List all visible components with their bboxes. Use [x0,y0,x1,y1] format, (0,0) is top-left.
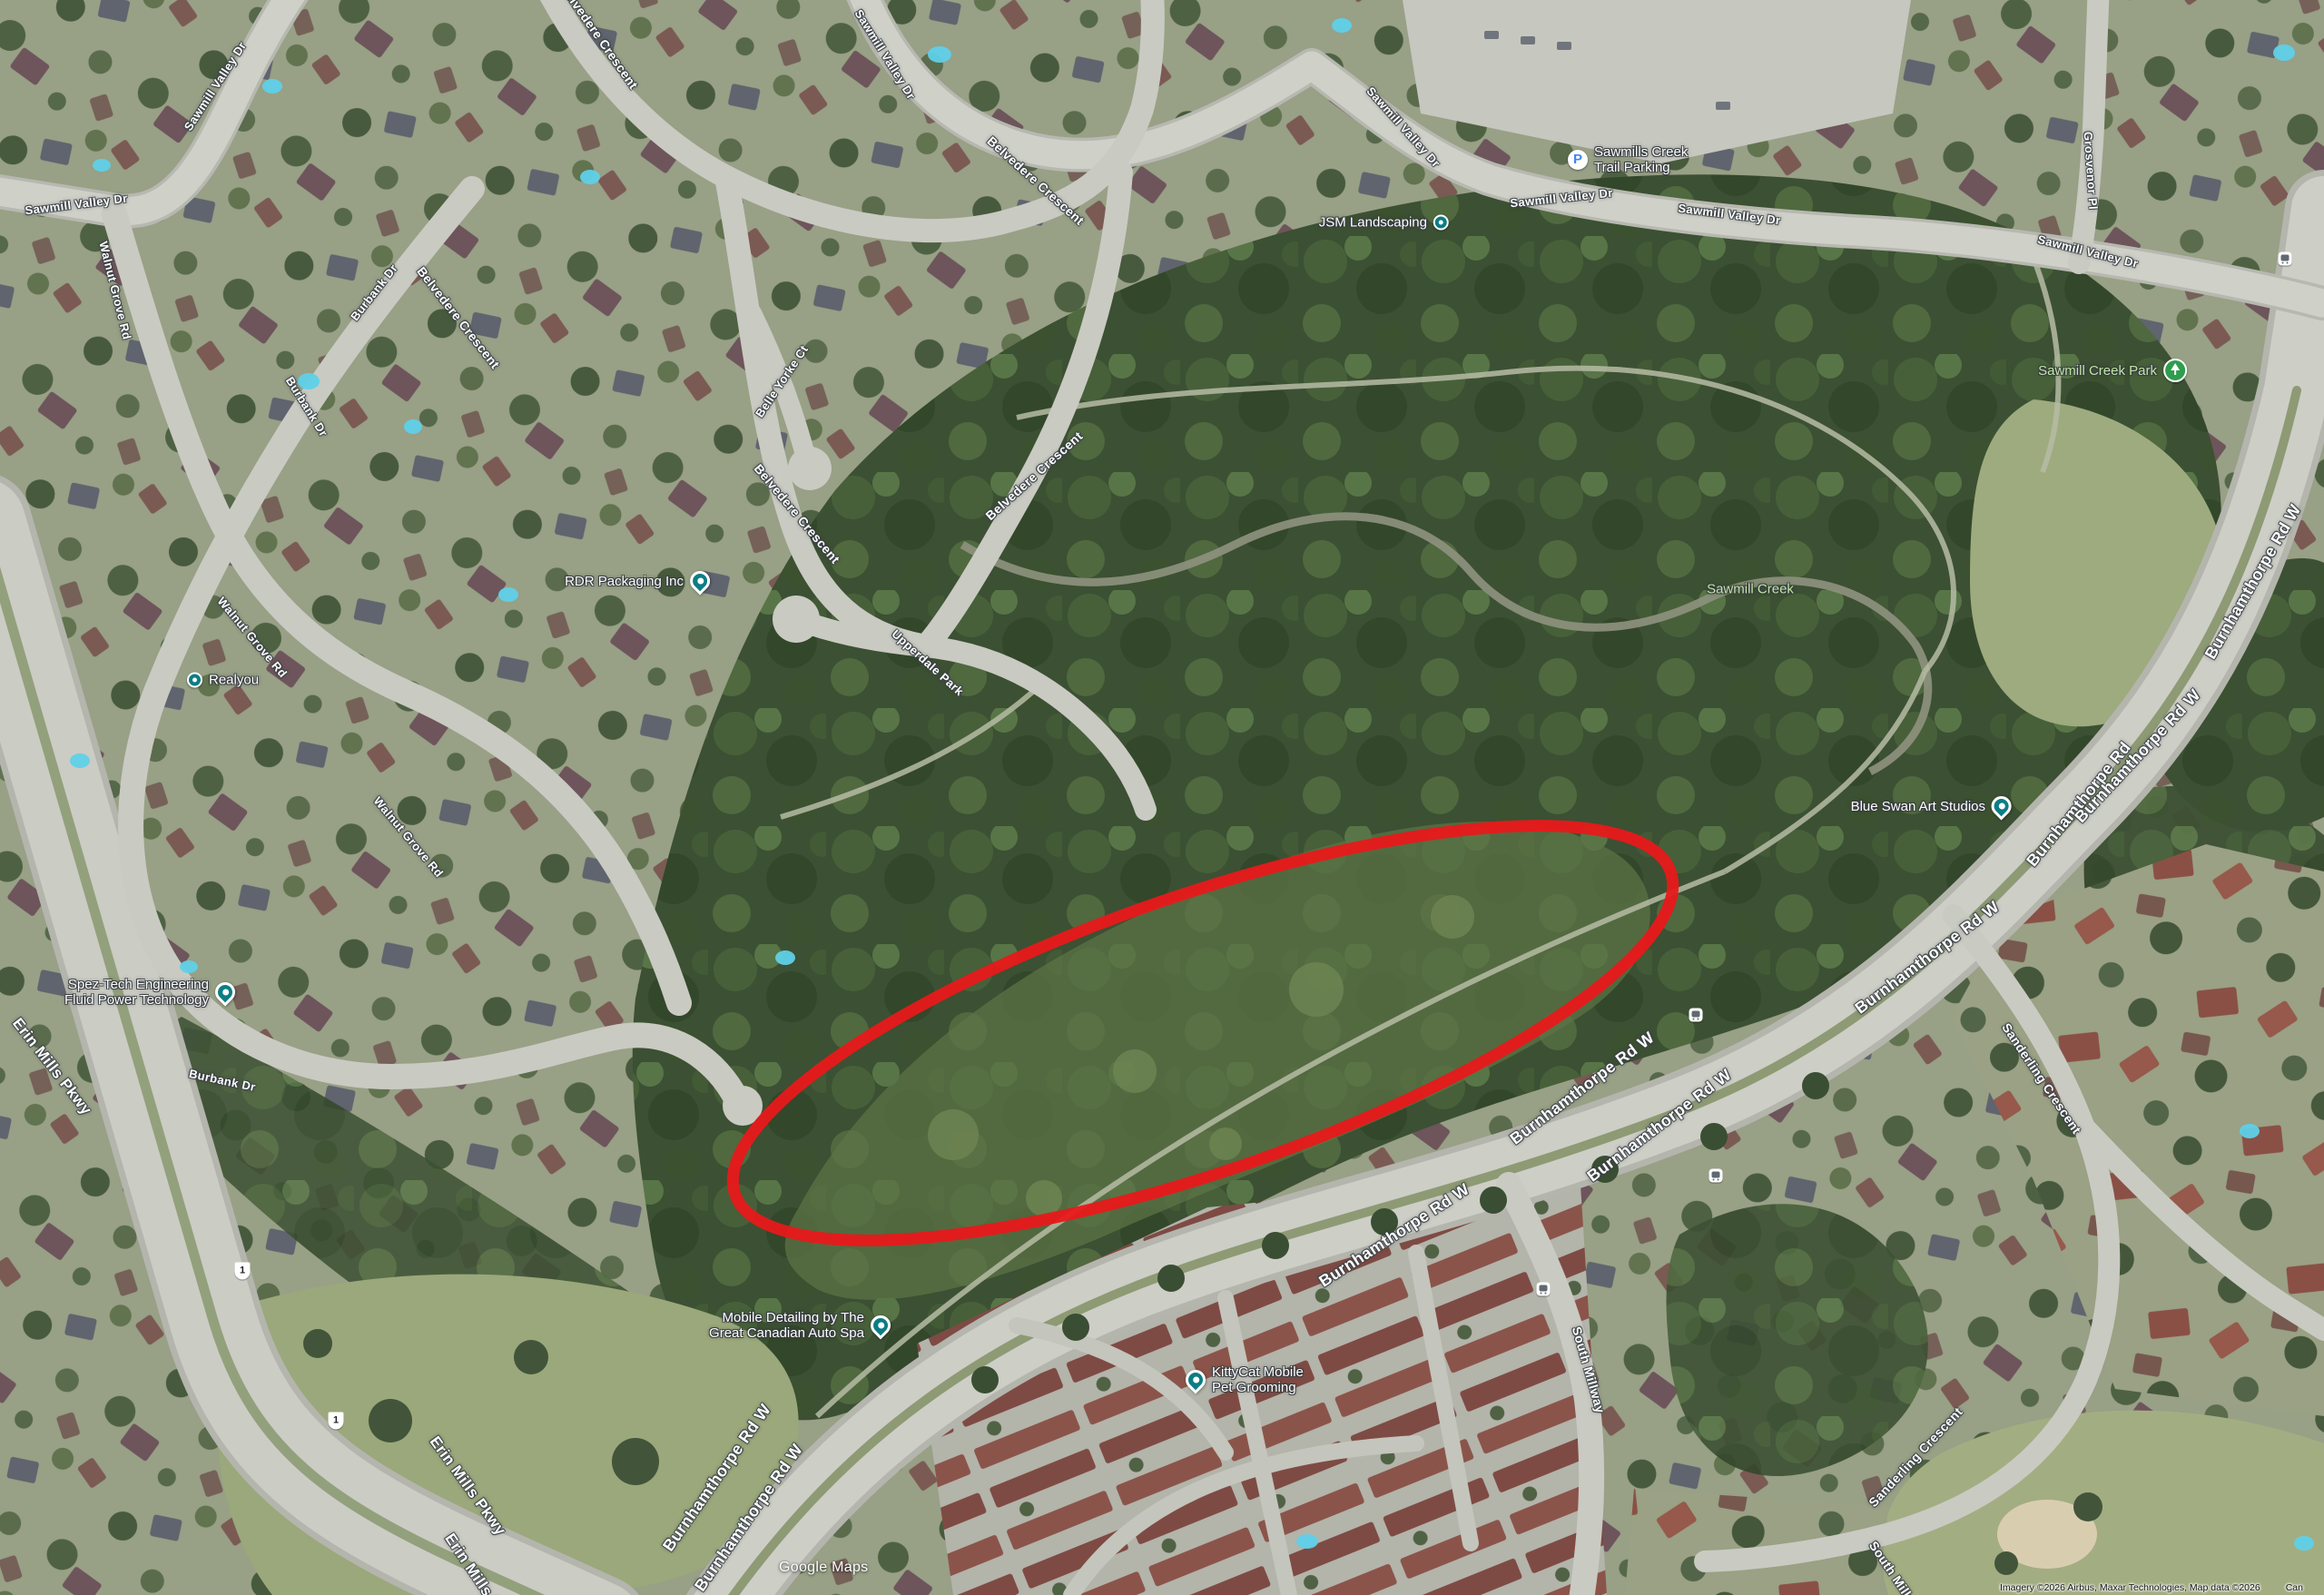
parking-icon[interactable]: P [1568,150,1588,170]
bus-stop-icon[interactable] [1689,1009,1703,1022]
tree-icon[interactable] [2163,359,2187,382]
label-layer: Sawmill Valley DrSawmill Valley DrWalnut… [0,0,2324,1595]
street-label: Upperdale Park [889,627,966,699]
street-label: Belvedere Crescent [414,264,503,372]
street-label: Belvedere Crescent [557,0,641,92]
street-label: Sanderling Crescent [1999,1020,2084,1137]
poi-label-text: JSM Landscaping [1319,215,1427,231]
poi-label-text: Blue Swan Art Studios [1851,799,1985,814]
street-label: Burbank Dr [188,1067,257,1094]
street-label: Erin Mills Pkwy [426,1433,509,1540]
street-label: Burnhamthorpe Rd W [1852,897,2004,1018]
poi-label-text: Sawmill Creek [1707,582,1794,597]
pin-icon[interactable] [211,978,239,1006]
street-label: Walnut Grove Rd [215,595,290,681]
pin-icon[interactable] [1181,1365,1209,1393]
poi-spez-tech[interactable]: Spez-Tech EngineeringFluid Power Technol… [64,977,235,1008]
poi-label-text: Spez-Tech EngineeringFluid Power Technol… [64,977,209,1008]
pin-icon[interactable] [1987,792,2015,820]
street-label: Sawmill Valley Dr [182,39,250,133]
poi-label-text: Realyou [209,673,259,688]
street-label: South Millway [1570,1324,1609,1414]
street-label: Burbank Dr [348,261,400,323]
street-label: Burbank Dr [283,374,330,438]
attribution-suffix: Can [2286,1582,2303,1593]
street-label: Walnut Grove Rd [96,240,133,340]
street-label: Belvedere Crescent [984,133,1087,228]
street-label: Sawmill Valley Dr [1678,202,1782,228]
pin-icon[interactable] [685,566,714,595]
poi-sawmills-creek-trail-parking[interactable]: PSawmills CreekTrail Parking [1568,144,1688,175]
poi-rdr-packaging-inc[interactable]: RDR Packaging Inc [565,571,710,591]
attribution-text: Imagery ©2026 Airbus, Maxar Technologies… [2000,1582,2260,1593]
street-label: Burnhamthorpe Rd W [1315,1180,1472,1292]
street-label: Burnhamthorpe Rd W [659,1401,775,1555]
street-label: Burnhamthorpe Rd W [2201,501,2306,663]
poi-blue-swan-art-studios[interactable]: Blue Swan Art Studios [1851,796,2012,816]
bus-stop-icon[interactable] [2279,252,2292,266]
poi-label-text: RDR Packaging Inc [565,574,684,589]
poi-sawmill-creek-park[interactable]: Sawmill Creek Park [2038,359,2187,382]
street-label: South Millway [1866,1539,1928,1595]
street-label: Erin Mills Pkwy [8,1015,95,1119]
poi-jsm-landscaping[interactable]: JSM Landscaping [1319,215,1449,231]
bus-stop-icon[interactable] [1537,1283,1551,1296]
pin-icon[interactable] [866,1311,894,1339]
highway-shield: 1 [235,1263,251,1280]
street-label: Sanderling Crescent [1866,1404,1965,1510]
map-canvas[interactable]: Sawmill Valley DrSawmill Valley DrWalnut… [0,0,2324,1595]
google-maps-watermark[interactable]: Google Maps [779,1560,868,1576]
attribution: Imagery ©2026 Airbus, Maxar Technologies… [2000,1582,2303,1593]
poi-label-text: Mobile Detailing by TheGreat Canadian Au… [709,1310,864,1341]
poi-label-text: KittyCat MobilePet Grooming [1212,1364,1304,1395]
poi-kittycat-grooming[interactable]: KittyCat MobilePet Grooming [1186,1364,1304,1395]
street-label: Sawmill Valley Dr [852,7,919,102]
street-label: Erin Mills Pkwy [440,1531,521,1595]
street-label: Grosvenor Pl [2082,131,2101,210]
poi-mobile-detailing[interactable]: Mobile Detailing by TheGreat Canadian Au… [709,1310,891,1341]
street-label: Sawmill Valley Dr [1510,186,1614,211]
street-label: Walnut Grove Rd [371,794,447,881]
street-label: Burnhamthorpe Rd W [2071,685,2204,827]
street-label: Belle Yorke Ct [753,342,811,419]
street-label: Sawmill Valley Dr [25,192,129,218]
dot-icon[interactable] [187,673,202,688]
poi-label-text: Sawmill Creek Park [2038,363,2157,379]
street-label: Sawmill Valley Dr [2036,232,2140,271]
street-label: Sawmill Valley Dr [1364,84,1443,171]
poi-label-text: Sawmills CreekTrail Parking [1594,144,1688,175]
highway-shield: 1 [329,1413,344,1430]
poi-sawmill-creek[interactable]: Sawmill Creek [1707,582,1794,597]
bus-stop-icon[interactable] [1709,1169,1723,1183]
street-label: Belvedere Crescent [752,461,843,566]
dot-icon[interactable] [1433,215,1449,231]
street-label: Belvedere Crescent [982,428,1085,523]
poi-realyou[interactable]: Realyou [187,673,259,688]
